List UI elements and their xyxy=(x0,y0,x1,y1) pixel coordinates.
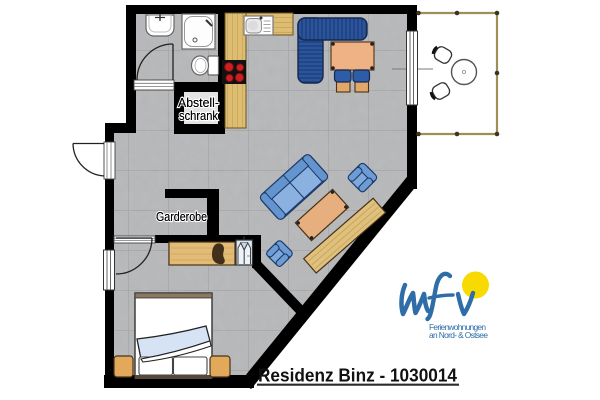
svg-text:an Nord- & Ostsee: an Nord- & Ostsee xyxy=(429,330,488,340)
svg-text:schrank: schrank xyxy=(179,108,218,123)
svg-text:Residenz Binz - 1030014: Residenz Binz - 1030014 xyxy=(258,366,457,386)
svg-text:Garderobe: Garderobe xyxy=(156,210,207,224)
